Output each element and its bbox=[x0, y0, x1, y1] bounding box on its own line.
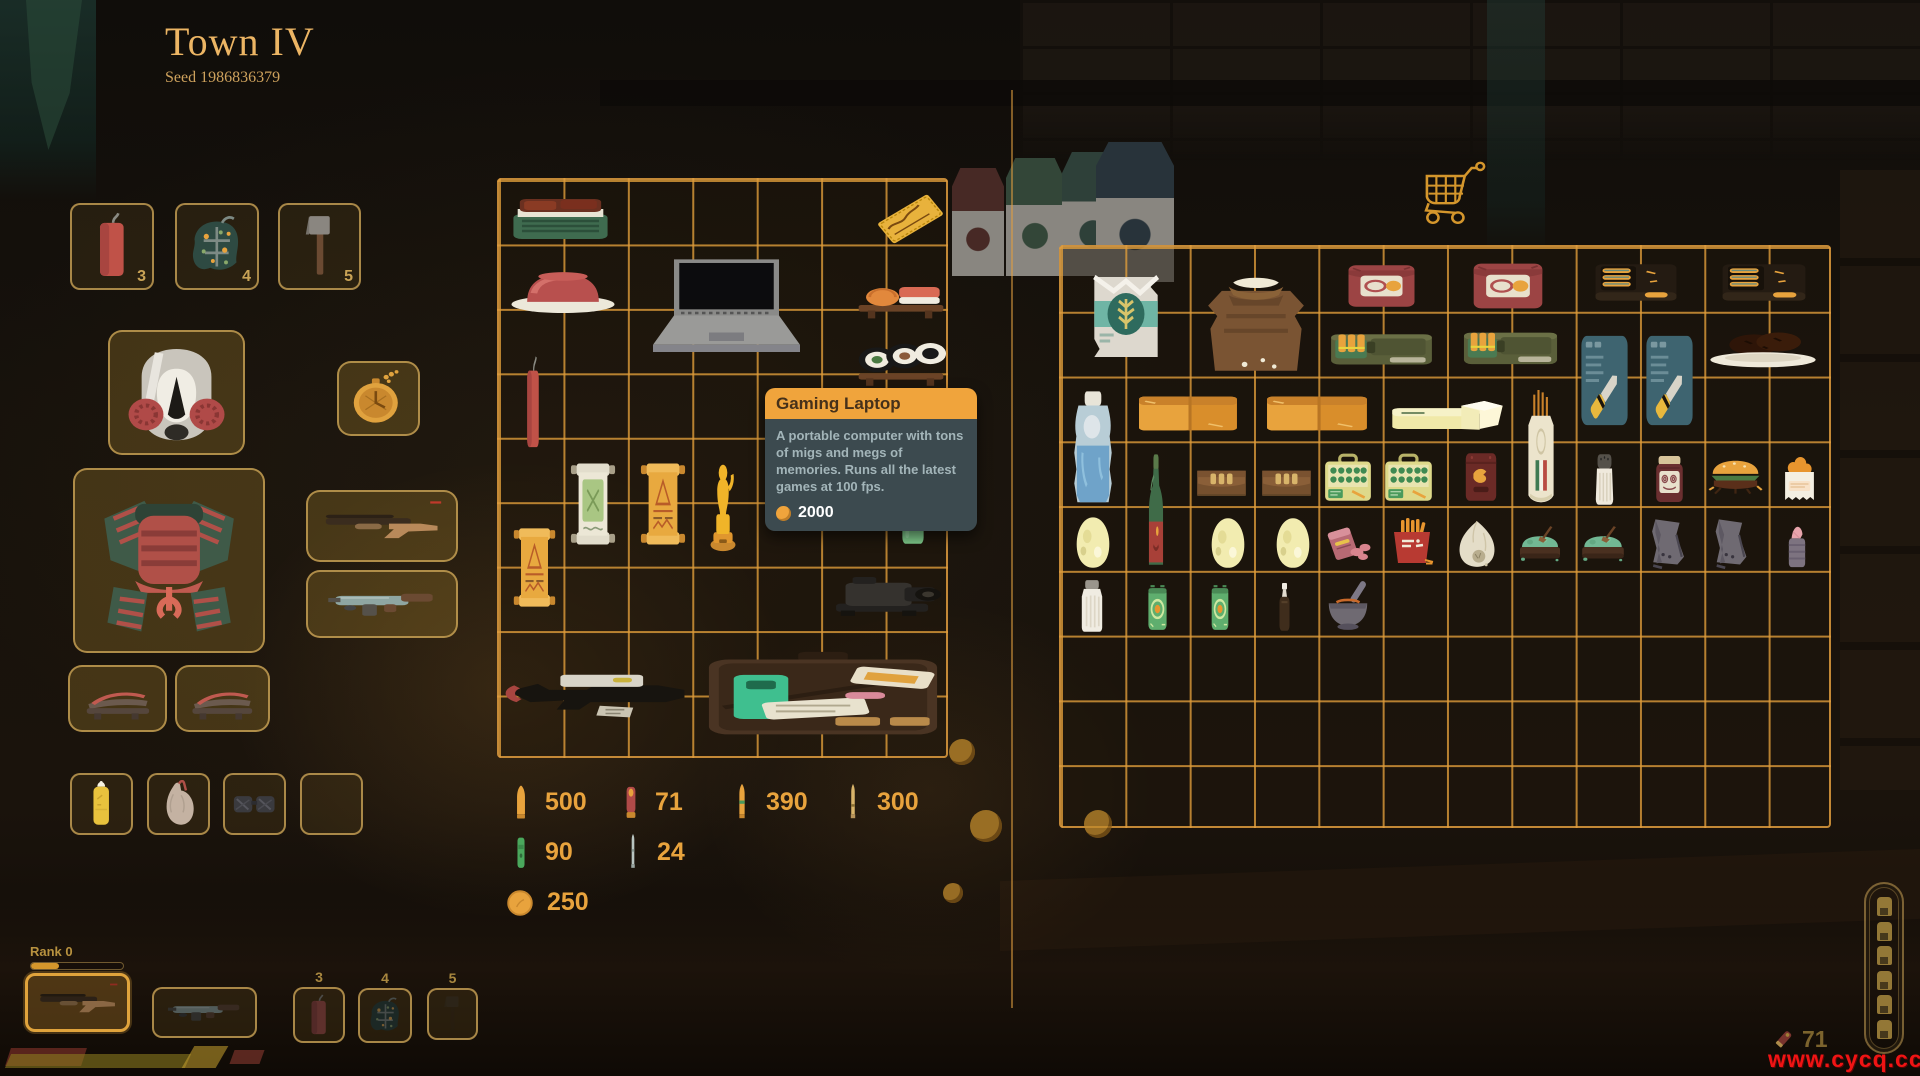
item-egg-3[interactable] bbox=[1269, 515, 1317, 570]
item-orange-crate-1[interactable] bbox=[1137, 390, 1239, 437]
orange-crate-icon bbox=[1137, 390, 1239, 437]
hotbar-slot-1[interactable] bbox=[25, 973, 130, 1032]
body-slot[interactable] bbox=[73, 468, 265, 653]
bbq-tray-icon bbox=[507, 195, 614, 245]
item-gaming-laptop[interactable] bbox=[639, 252, 814, 374]
tooltip-title: Gaming Laptop bbox=[765, 388, 977, 419]
green-can-icon bbox=[1204, 582, 1236, 634]
item-burger[interactable] bbox=[1707, 457, 1764, 504]
tooltip-body: A portable computer with tons of migs an… bbox=[765, 419, 977, 531]
item-trophy[interactable] bbox=[699, 462, 747, 552]
item-cookies-plate[interactable] bbox=[1707, 325, 1819, 372]
item-rat-trap-2[interactable] bbox=[1719, 259, 1809, 311]
item-bbq-tray[interactable] bbox=[507, 195, 614, 245]
special-round-icon bbox=[510, 834, 532, 870]
item-scroll-white[interactable] bbox=[569, 460, 617, 548]
gold-coin[interactable] bbox=[970, 810, 1002, 842]
green-ammo-box-icon bbox=[1382, 452, 1435, 505]
ammo-value: 500 bbox=[545, 788, 587, 817]
sandal-icon bbox=[79, 673, 157, 725]
butter-icon bbox=[1390, 397, 1505, 437]
canned-meat-icon bbox=[1344, 260, 1419, 312]
item-sushi-maki[interactable] bbox=[855, 330, 947, 392]
shotgun-icon bbox=[37, 981, 118, 1024]
scroll-orange-icon bbox=[639, 460, 687, 548]
weapon-slot-shotgun[interactable] bbox=[306, 490, 458, 562]
ammo-count-coin: 250 bbox=[506, 888, 589, 917]
item-flour-bag[interactable] bbox=[1082, 267, 1170, 367]
milk-carton bbox=[952, 168, 1004, 276]
quick-slot-5[interactable]: 5 bbox=[278, 203, 361, 290]
baguette-icon bbox=[1520, 390, 1562, 507]
item-egg-1[interactable] bbox=[1069, 514, 1117, 570]
water-jug-icon bbox=[1067, 389, 1119, 507]
tooltip-description: A portable computer with tons of migs an… bbox=[776, 427, 966, 495]
flour-bag-icon bbox=[1082, 267, 1170, 367]
foot-slot-left[interactable] bbox=[68, 665, 167, 732]
ammo-count-sniper-round: 300 bbox=[842, 784, 919, 820]
slot-number-label: 4 bbox=[242, 268, 251, 286]
foot-slot-right[interactable] bbox=[175, 665, 270, 732]
item-ham-plate[interactable] bbox=[507, 256, 619, 318]
hotbar-slot-2[interactable] bbox=[152, 987, 257, 1038]
rank-progress-fill bbox=[31, 963, 59, 969]
camo-grenade-icon bbox=[184, 212, 250, 280]
item-jam-jar[interactable] bbox=[1650, 455, 1689, 505]
quick-slot-3[interactable]: 3 bbox=[70, 203, 154, 290]
item-herb-tray-2[interactable] bbox=[1577, 524, 1629, 565]
item-black-rifle[interactable] bbox=[504, 658, 692, 734]
hatchet-icon bbox=[433, 994, 472, 1033]
ammo-value: 390 bbox=[766, 788, 808, 817]
hotbar-slot-3[interactable]: 3 bbox=[293, 987, 345, 1043]
ammo-can-icon bbox=[1329, 324, 1434, 376]
armor-piece-icon bbox=[1704, 515, 1757, 570]
slot-number-label: 5 bbox=[344, 268, 353, 286]
hatchet-icon bbox=[287, 212, 352, 280]
shop-inventory-grid[interactable] bbox=[1059, 245, 1831, 828]
ammo-count-long-round: 24 bbox=[622, 834, 685, 870]
game-screen: Town IV Seed 1986836379 345 500713903009… bbox=[0, 0, 1920, 1076]
item-green-can-2[interactable] bbox=[1204, 582, 1236, 634]
burger-icon bbox=[1707, 457, 1764, 504]
ammo-can-icon bbox=[1462, 322, 1559, 376]
tooltip-price: 2000 bbox=[798, 504, 834, 522]
misc-slot-goggles[interactable] bbox=[223, 773, 286, 835]
ammo-count-special-round: 90 bbox=[510, 834, 573, 870]
organ-icon bbox=[154, 780, 202, 828]
rank-widget: Rank 0 bbox=[30, 944, 124, 970]
slot-number-label: 3 bbox=[295, 969, 343, 985]
rank-label: Rank 0 bbox=[30, 944, 124, 959]
armor-piece-icon bbox=[1640, 515, 1695, 570]
sniper-round-icon bbox=[842, 784, 864, 820]
ammo-value: 300 bbox=[877, 788, 919, 817]
gold-coin[interactable] bbox=[1084, 810, 1112, 838]
misc-slot-empty[interactable] bbox=[300, 773, 363, 835]
misc-slot-organ[interactable] bbox=[147, 773, 210, 835]
flour-sack-icon bbox=[1199, 272, 1313, 377]
milk-carton bbox=[1006, 158, 1064, 276]
item-armor-piece-1[interactable] bbox=[1640, 515, 1695, 570]
item-fries-box[interactable] bbox=[1387, 517, 1437, 567]
pocket-watch-icon bbox=[346, 369, 411, 427]
sandal-icon bbox=[185, 673, 260, 725]
item-knife-kit-1[interactable] bbox=[1577, 332, 1632, 429]
panel-divider bbox=[1011, 90, 1013, 1008]
item-golden-ticket[interactable] bbox=[874, 188, 947, 250]
shell-ammo-indicator bbox=[1864, 882, 1904, 1054]
bookshelf-decor bbox=[1840, 170, 1920, 790]
seed-label: Seed 1986836379 bbox=[165, 69, 315, 87]
rank-progress-bar bbox=[30, 962, 124, 970]
item-rat-trap-1[interactable] bbox=[1592, 259, 1680, 311]
item-egg-2[interactable] bbox=[1204, 515, 1252, 570]
gold-coin[interactable] bbox=[949, 739, 975, 765]
laptop-icon bbox=[639, 252, 814, 374]
rat-trap-icon bbox=[1719, 259, 1809, 311]
sausage-box-icon bbox=[1324, 519, 1374, 565]
wallet-icon bbox=[1194, 460, 1249, 505]
hotbar-slot-4[interactable]: 4 bbox=[358, 988, 412, 1043]
quick-slot-4[interactable]: 4 bbox=[175, 203, 259, 290]
fg-weapon-shape-olive bbox=[5, 1054, 191, 1068]
item-dropper-bottle[interactable] bbox=[1272, 582, 1297, 635]
mortar-pestle-icon bbox=[1324, 579, 1372, 632]
window-right-decor bbox=[1487, 0, 1545, 255]
head-slot[interactable] bbox=[108, 330, 245, 455]
garlic-sack-icon bbox=[1454, 517, 1500, 570]
golden-ticket-icon bbox=[874, 188, 947, 250]
shotgun-shell-icon bbox=[620, 784, 642, 820]
item-sushi-nigiri[interactable] bbox=[855, 268, 947, 324]
ammo-count-pistol-round: 500 bbox=[510, 784, 587, 820]
dynamite-stick-icon bbox=[299, 994, 338, 1037]
item-snack-cup[interactable] bbox=[1777, 455, 1822, 505]
item-herb-tray-1[interactable] bbox=[1515, 524, 1565, 565]
slot-number-label: 5 bbox=[429, 970, 476, 986]
shell-indicator-round bbox=[1877, 922, 1892, 941]
coin-icon bbox=[506, 889, 534, 917]
item-dynamite[interactable] bbox=[517, 355, 549, 453]
yellow-bottle-icon bbox=[77, 780, 125, 828]
item-canned-meat-2[interactable] bbox=[1469, 258, 1547, 314]
tooltip-price-row: 2000 bbox=[776, 504, 966, 522]
misc-slot-lighter[interactable] bbox=[70, 773, 133, 835]
shell-indicator-round bbox=[1877, 946, 1892, 965]
slot-number-label: 3 bbox=[137, 268, 146, 286]
item-baguette[interactable] bbox=[1520, 390, 1562, 507]
item-scroll-orange[interactable] bbox=[639, 460, 687, 548]
camera-scope-icon bbox=[829, 570, 947, 628]
shell-indicator-round bbox=[1877, 897, 1892, 916]
shotgun-icon bbox=[321, 498, 442, 554]
herb-tray-icon bbox=[1515, 524, 1565, 565]
item-sausage-box[interactable] bbox=[1324, 519, 1374, 565]
item-flour-sack[interactable] bbox=[1199, 272, 1313, 377]
rifle-round-icon bbox=[731, 784, 753, 820]
scroll-white-icon bbox=[569, 460, 617, 548]
item-ammo-wallet-1[interactable] bbox=[1194, 460, 1249, 505]
snack-cup-icon bbox=[1777, 455, 1822, 505]
pink-can-icon bbox=[1780, 522, 1814, 570]
ammo-value: 24 bbox=[657, 838, 685, 867]
shell-indicator-round bbox=[1877, 1020, 1892, 1039]
item-milk-bottle[interactable] bbox=[1075, 579, 1109, 634]
item-pink-can[interactable] bbox=[1780, 522, 1814, 570]
item-camera-scope[interactable] bbox=[829, 570, 947, 628]
herb-tray-icon bbox=[1577, 524, 1629, 565]
item-garlic-sack[interactable] bbox=[1454, 517, 1500, 570]
item-red-pouch[interactable] bbox=[1462, 450, 1500, 504]
item-spice-shaker[interactable] bbox=[1590, 452, 1619, 507]
jam-jar-icon bbox=[1650, 455, 1689, 505]
camo-grenade-icon bbox=[365, 995, 406, 1037]
item-scroll-orange-2[interactable] bbox=[512, 525, 557, 610]
town-title: Town IV bbox=[165, 18, 315, 65]
goggles-icon bbox=[230, 780, 278, 828]
item-canned-meat-1[interactable] bbox=[1344, 260, 1419, 312]
item-butter-block[interactable] bbox=[1390, 397, 1505, 437]
town-header: Town IV Seed 1986836379 bbox=[165, 18, 315, 87]
red-pouch-icon bbox=[1462, 450, 1500, 504]
sushi-nigiri-icon bbox=[855, 268, 947, 324]
shopping-cart-icon bbox=[1408, 152, 1494, 232]
item-shell-box-2[interactable] bbox=[1382, 452, 1435, 505]
ammo-value: 71 bbox=[655, 788, 683, 817]
item-water-jug[interactable] bbox=[1067, 389, 1119, 507]
spice-shaker-icon bbox=[1590, 452, 1619, 507]
ceiling-beam-decor bbox=[600, 80, 1920, 106]
rat-trap-icon bbox=[1592, 259, 1680, 311]
item-shell-box-1[interactable] bbox=[1322, 452, 1374, 505]
ammo-count-shotgun-shell: 71 bbox=[620, 784, 683, 820]
wine-bottle-icon bbox=[1140, 452, 1172, 572]
item-ammo-can-2[interactable] bbox=[1462, 322, 1559, 376]
ham-plate-icon bbox=[507, 256, 619, 318]
knife-kit-icon bbox=[1642, 332, 1697, 429]
shell-indicator-round bbox=[1877, 995, 1892, 1014]
long-round-icon bbox=[622, 834, 644, 870]
coin-icon bbox=[776, 506, 791, 521]
sushi-maki-icon bbox=[855, 330, 947, 392]
dynamite-stick-icon bbox=[517, 355, 549, 453]
item-green-can-1[interactable] bbox=[1140, 582, 1175, 634]
black-rifle-icon bbox=[504, 658, 692, 734]
pistol-round-icon bbox=[510, 784, 532, 820]
item-tooltip: Gaming Laptop A portable computer with t… bbox=[765, 388, 977, 531]
smg-icon bbox=[163, 993, 246, 1032]
ammo-value: 90 bbox=[545, 838, 573, 867]
gas-mask-icon bbox=[122, 343, 231, 442]
cookies-plate-icon bbox=[1707, 325, 1819, 372]
item-armor-piece-2[interactable] bbox=[1704, 515, 1757, 570]
ammo-count-rifle-round: 390 bbox=[731, 784, 808, 820]
smg-icon bbox=[321, 578, 442, 631]
hotbar-slot-5[interactable]: 5 bbox=[427, 988, 478, 1040]
knife-kit-icon bbox=[1577, 332, 1632, 429]
dynamite-stick-icon bbox=[79, 212, 145, 280]
shell-indicator-round bbox=[1877, 971, 1892, 990]
fries-box-icon bbox=[1387, 517, 1437, 567]
wallet-icon bbox=[1259, 460, 1314, 505]
ammo-value: 250 bbox=[547, 888, 589, 917]
item-knife-kit-2[interactable] bbox=[1642, 332, 1697, 429]
item-briefcase-kit[interactable] bbox=[699, 648, 947, 744]
egg-icon bbox=[1204, 515, 1252, 570]
scroll-orange-icon bbox=[512, 525, 557, 610]
green-ammo-box-icon bbox=[1322, 452, 1374, 505]
orange-crate-icon bbox=[1265, 390, 1369, 437]
slot-number-label: 4 bbox=[360, 970, 410, 986]
briefcase-kit-icon bbox=[699, 648, 947, 744]
canned-meat-icon bbox=[1469, 258, 1547, 314]
item-orange-crate-2[interactable] bbox=[1265, 390, 1369, 437]
egg-icon bbox=[1269, 515, 1317, 570]
item-ammo-wallet-2[interactable] bbox=[1259, 460, 1314, 505]
fg-weapon-shape-red2 bbox=[229, 1050, 264, 1064]
item-mortar-pestle[interactable] bbox=[1324, 579, 1372, 632]
amulet-slot[interactable] bbox=[337, 361, 420, 436]
watermark: www.cycq.cc bbox=[1768, 1046, 1920, 1073]
gold-coin[interactable] bbox=[943, 883, 963, 903]
egg-icon bbox=[1069, 514, 1117, 570]
trophy-icon bbox=[699, 462, 747, 552]
item-ammo-can-1[interactable] bbox=[1329, 324, 1434, 376]
weapon-slot-smg[interactable] bbox=[306, 570, 458, 638]
green-can-icon bbox=[1140, 582, 1175, 634]
samurai-armor-icon bbox=[92, 486, 246, 634]
dropper-bottle-icon bbox=[1272, 582, 1297, 635]
milk-bottle-icon bbox=[1075, 579, 1109, 634]
item-wine-bottle[interactable] bbox=[1140, 452, 1172, 572]
